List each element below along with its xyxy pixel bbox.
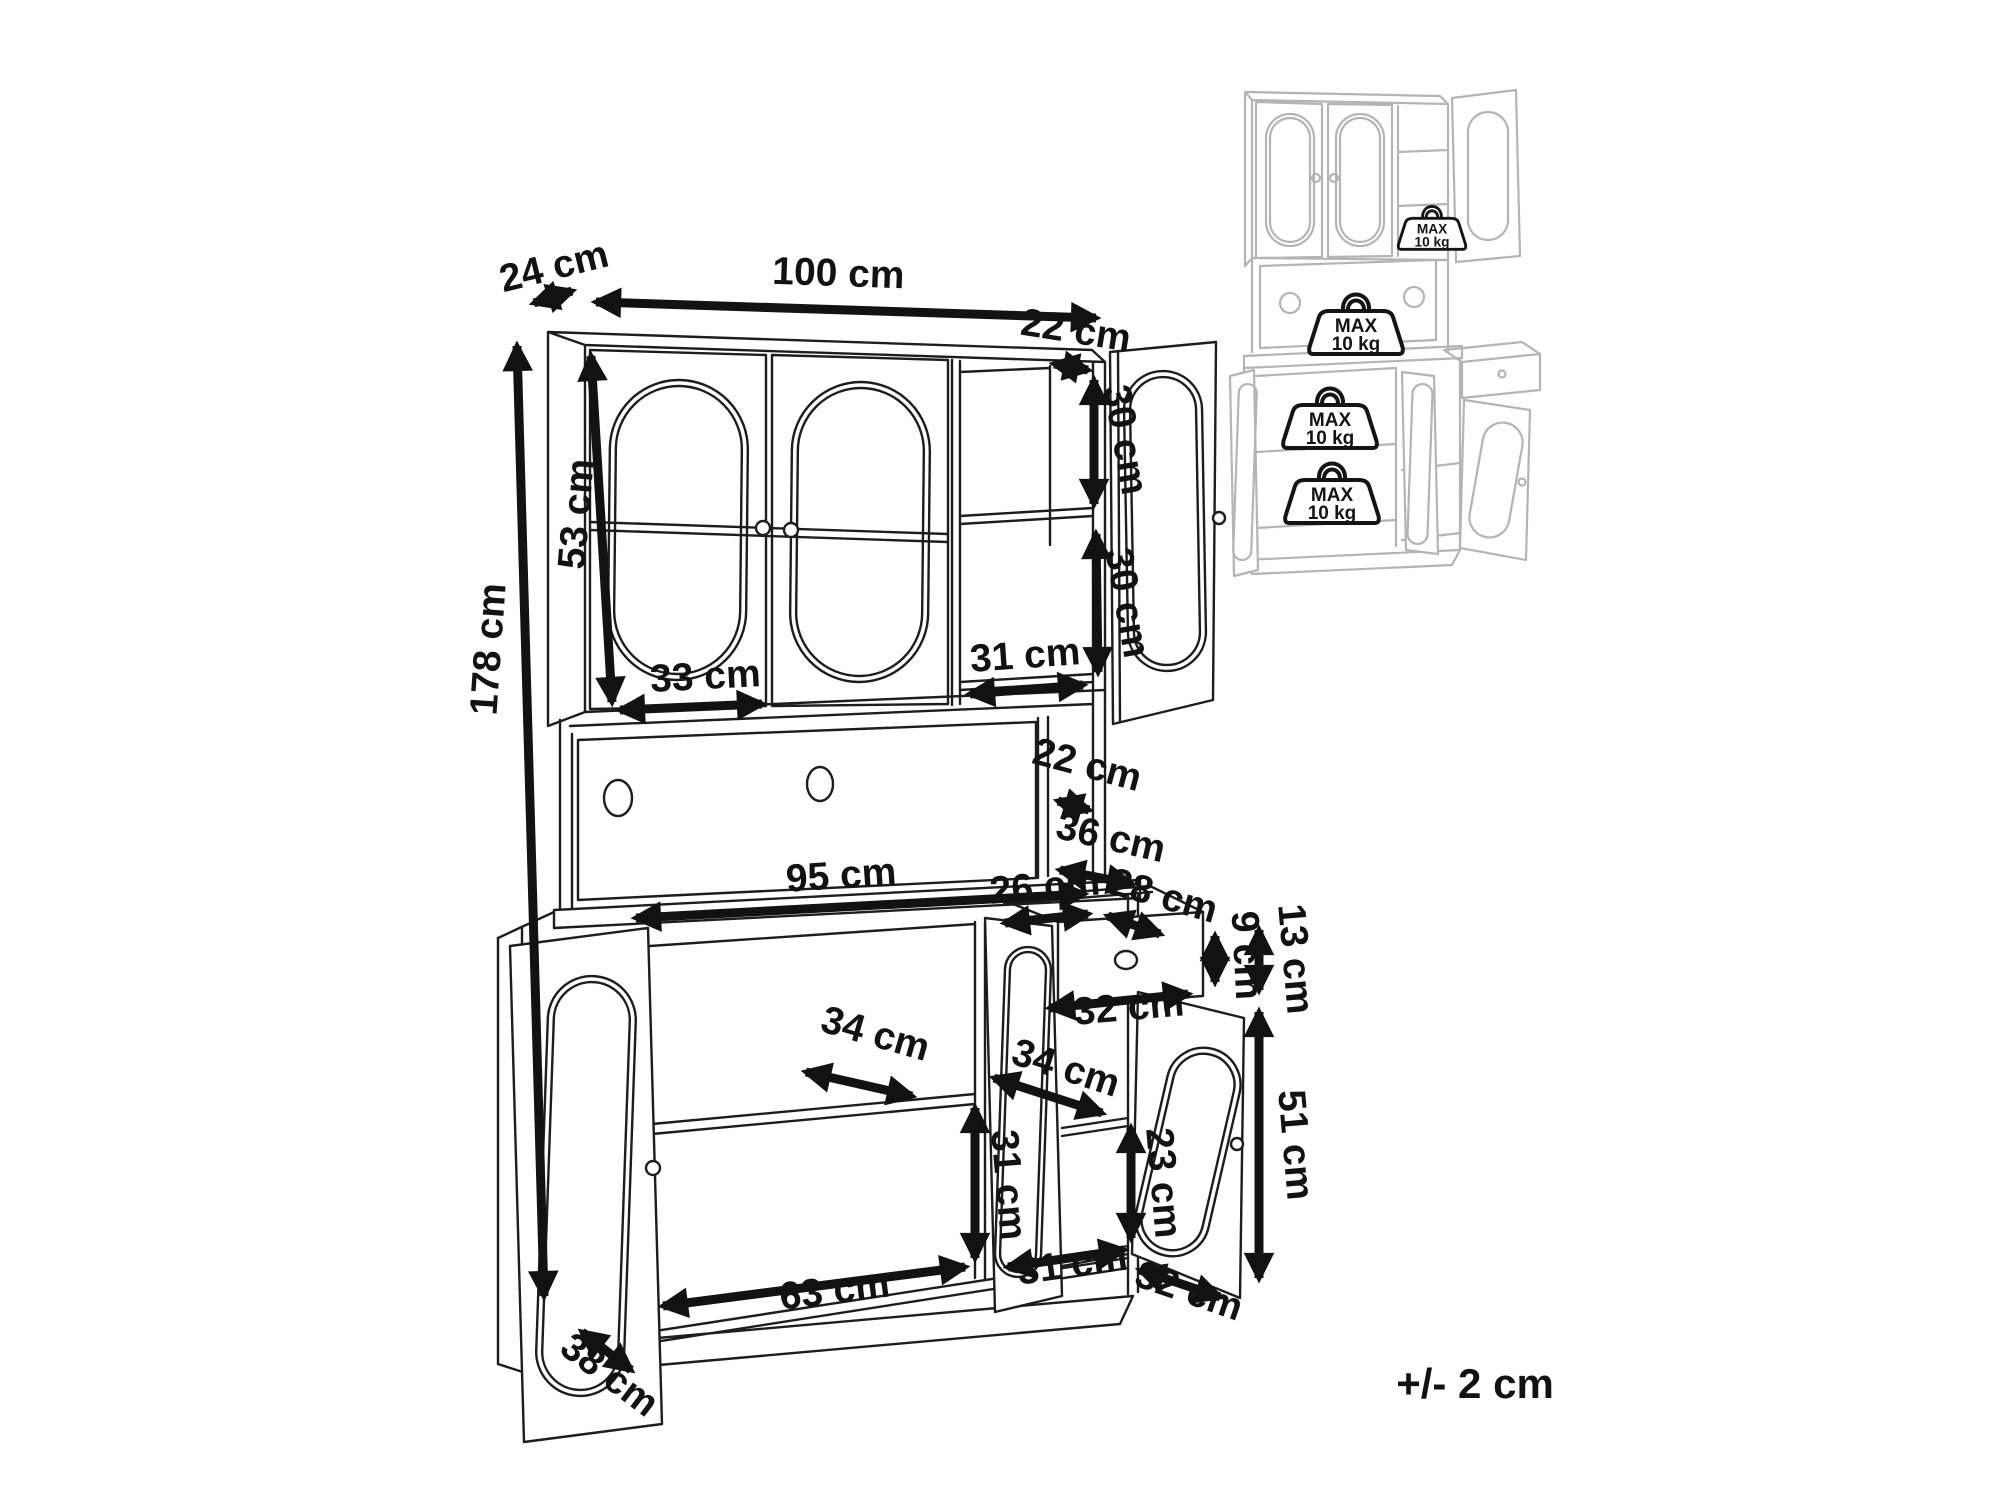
max-load-value: 10 kg [1308,503,1357,524]
cable-hole [1404,287,1424,307]
dim-label: 178 cm [462,582,514,717]
dim-label: 22 cm [1018,301,1134,361]
dim-label: 53 cm [550,457,602,571]
drawer-knob [1115,951,1137,969]
max-load-weight-floor: MAX 10 kg [1285,464,1379,525]
diagram-canvas: 24 cm 100 cm 22 cm 30 cm 30 cm 53 cm 33 … [0,0,2000,1499]
dim-label: 26 cm [988,860,1102,912]
dim-drawer-opening-width: 26 cm [988,860,1102,923]
dim-total-width: 100 cm [596,250,1096,318]
glass-capsule-outer [1336,114,1384,246]
dim-upper-door-width: 33 cm [620,652,762,710]
dim-label: 31 cm [982,1128,1034,1242]
dim-label: 36 cm [1052,804,1169,871]
door-knob [756,521,770,535]
cabinet-dimension-diagram: 24 cm 100 cm 22 cm 30 cm 30 cm 53 cm 33 … [0,0,2000,1499]
glass-capsule-outer [1266,114,1314,246]
dim-label: 100 cm [772,250,906,298]
glass-capsule-outer [607,379,748,680]
weight-handle-icon [1423,206,1442,218]
dim-label: 22 cm [1028,730,1146,800]
dim-upper-open-width: 31 cm [968,630,1083,694]
inset-door-window [1266,114,1314,246]
inset-drawer-front [1462,354,1540,398]
dim-label: 51 cm [1269,1088,1321,1202]
dim-label: 13 cm [1269,902,1321,1016]
dim-arrow [620,704,762,710]
glass-capsule-inner [1340,118,1380,242]
upper-door-window-left [607,379,748,680]
dim-niche-depth: 22 cm [1028,730,1146,810]
door-knob [1213,512,1225,524]
dim-label: 24 cm [495,233,613,301]
max-load-value: 10 kg [1332,334,1381,355]
dim-label: 33 cm [649,652,762,701]
max-load-value: 10 kg [1306,428,1355,449]
max-load-weight-shelf: MAX 10 kg [1283,389,1377,450]
weight-handle-icon [1319,464,1345,481]
dim-top-depth: 24 cm [495,233,613,303]
weight-handle-icon [1317,389,1343,406]
dim-label: 63 cm [777,1263,892,1319]
dim-lower-door-height: 51 cm [1259,1012,1322,1278]
glass-capsule-inner [1270,118,1310,242]
dim-arrow [596,302,1096,318]
inset-drawing: MAX 10 kg MAX 10 kg MAX 10 kg MAX 10 kg [1230,90,1540,576]
dim-arrow [534,291,572,303]
door-knob [1231,1138,1243,1150]
dim-label: 34 cm [816,998,934,1070]
dim-arrow [806,1072,912,1096]
weight-handle-icon [1343,295,1369,312]
cable-hole [1280,293,1300,313]
glass-capsule-inner [613,385,742,674]
max-load-value: 10 kg [1415,234,1450,249]
dim-label: 31 cm [968,630,1081,681]
inset-door-window [1336,114,1384,246]
dim-label-arrow [1054,364,1088,370]
cable-hole [807,767,833,801]
dim-upper-height: 53 cm [550,356,612,702]
cable-hole [604,780,632,816]
tolerance-note: +/- 2 cm [1396,1360,1554,1407]
dim-lower-left-shelf-depth: 34 cm [806,998,935,1096]
door-knob [784,523,798,537]
max-load-weight-niche: MAX 10 kg [1309,295,1403,356]
dim-label: 95 cm [784,850,897,901]
door-knob [646,1161,660,1175]
